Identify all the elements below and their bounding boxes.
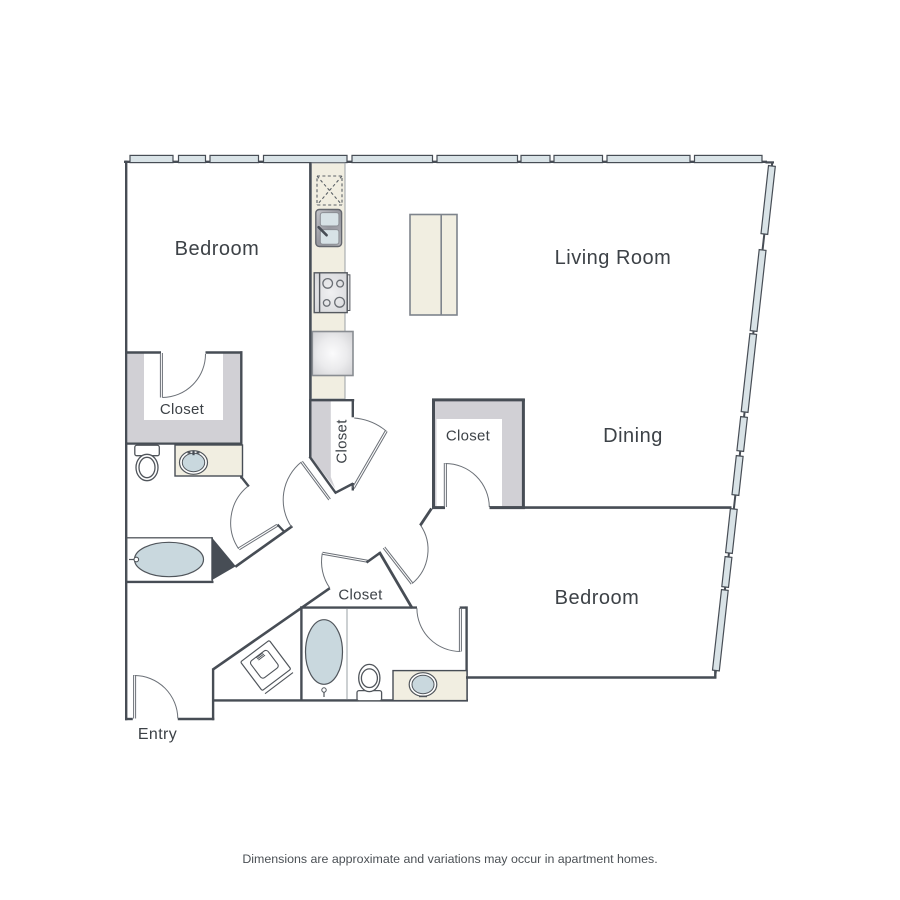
svg-text:Dimensions are approximate and: Dimensions are approximate and variation… [242,852,657,866]
svg-text:Closet: Closet [334,419,351,464]
svg-text:Entry: Entry [138,726,177,743]
svg-text:Closet: Closet [338,587,383,604]
svg-text:Closet: Closet [160,401,205,418]
svg-text:Dining: Dining [603,425,663,447]
svg-text:Bedroom: Bedroom [555,587,640,609]
svg-text:Closet: Closet [446,428,491,445]
svg-text:Living Room: Living Room [555,247,672,269]
svg-text:Bedroom: Bedroom [175,238,260,260]
